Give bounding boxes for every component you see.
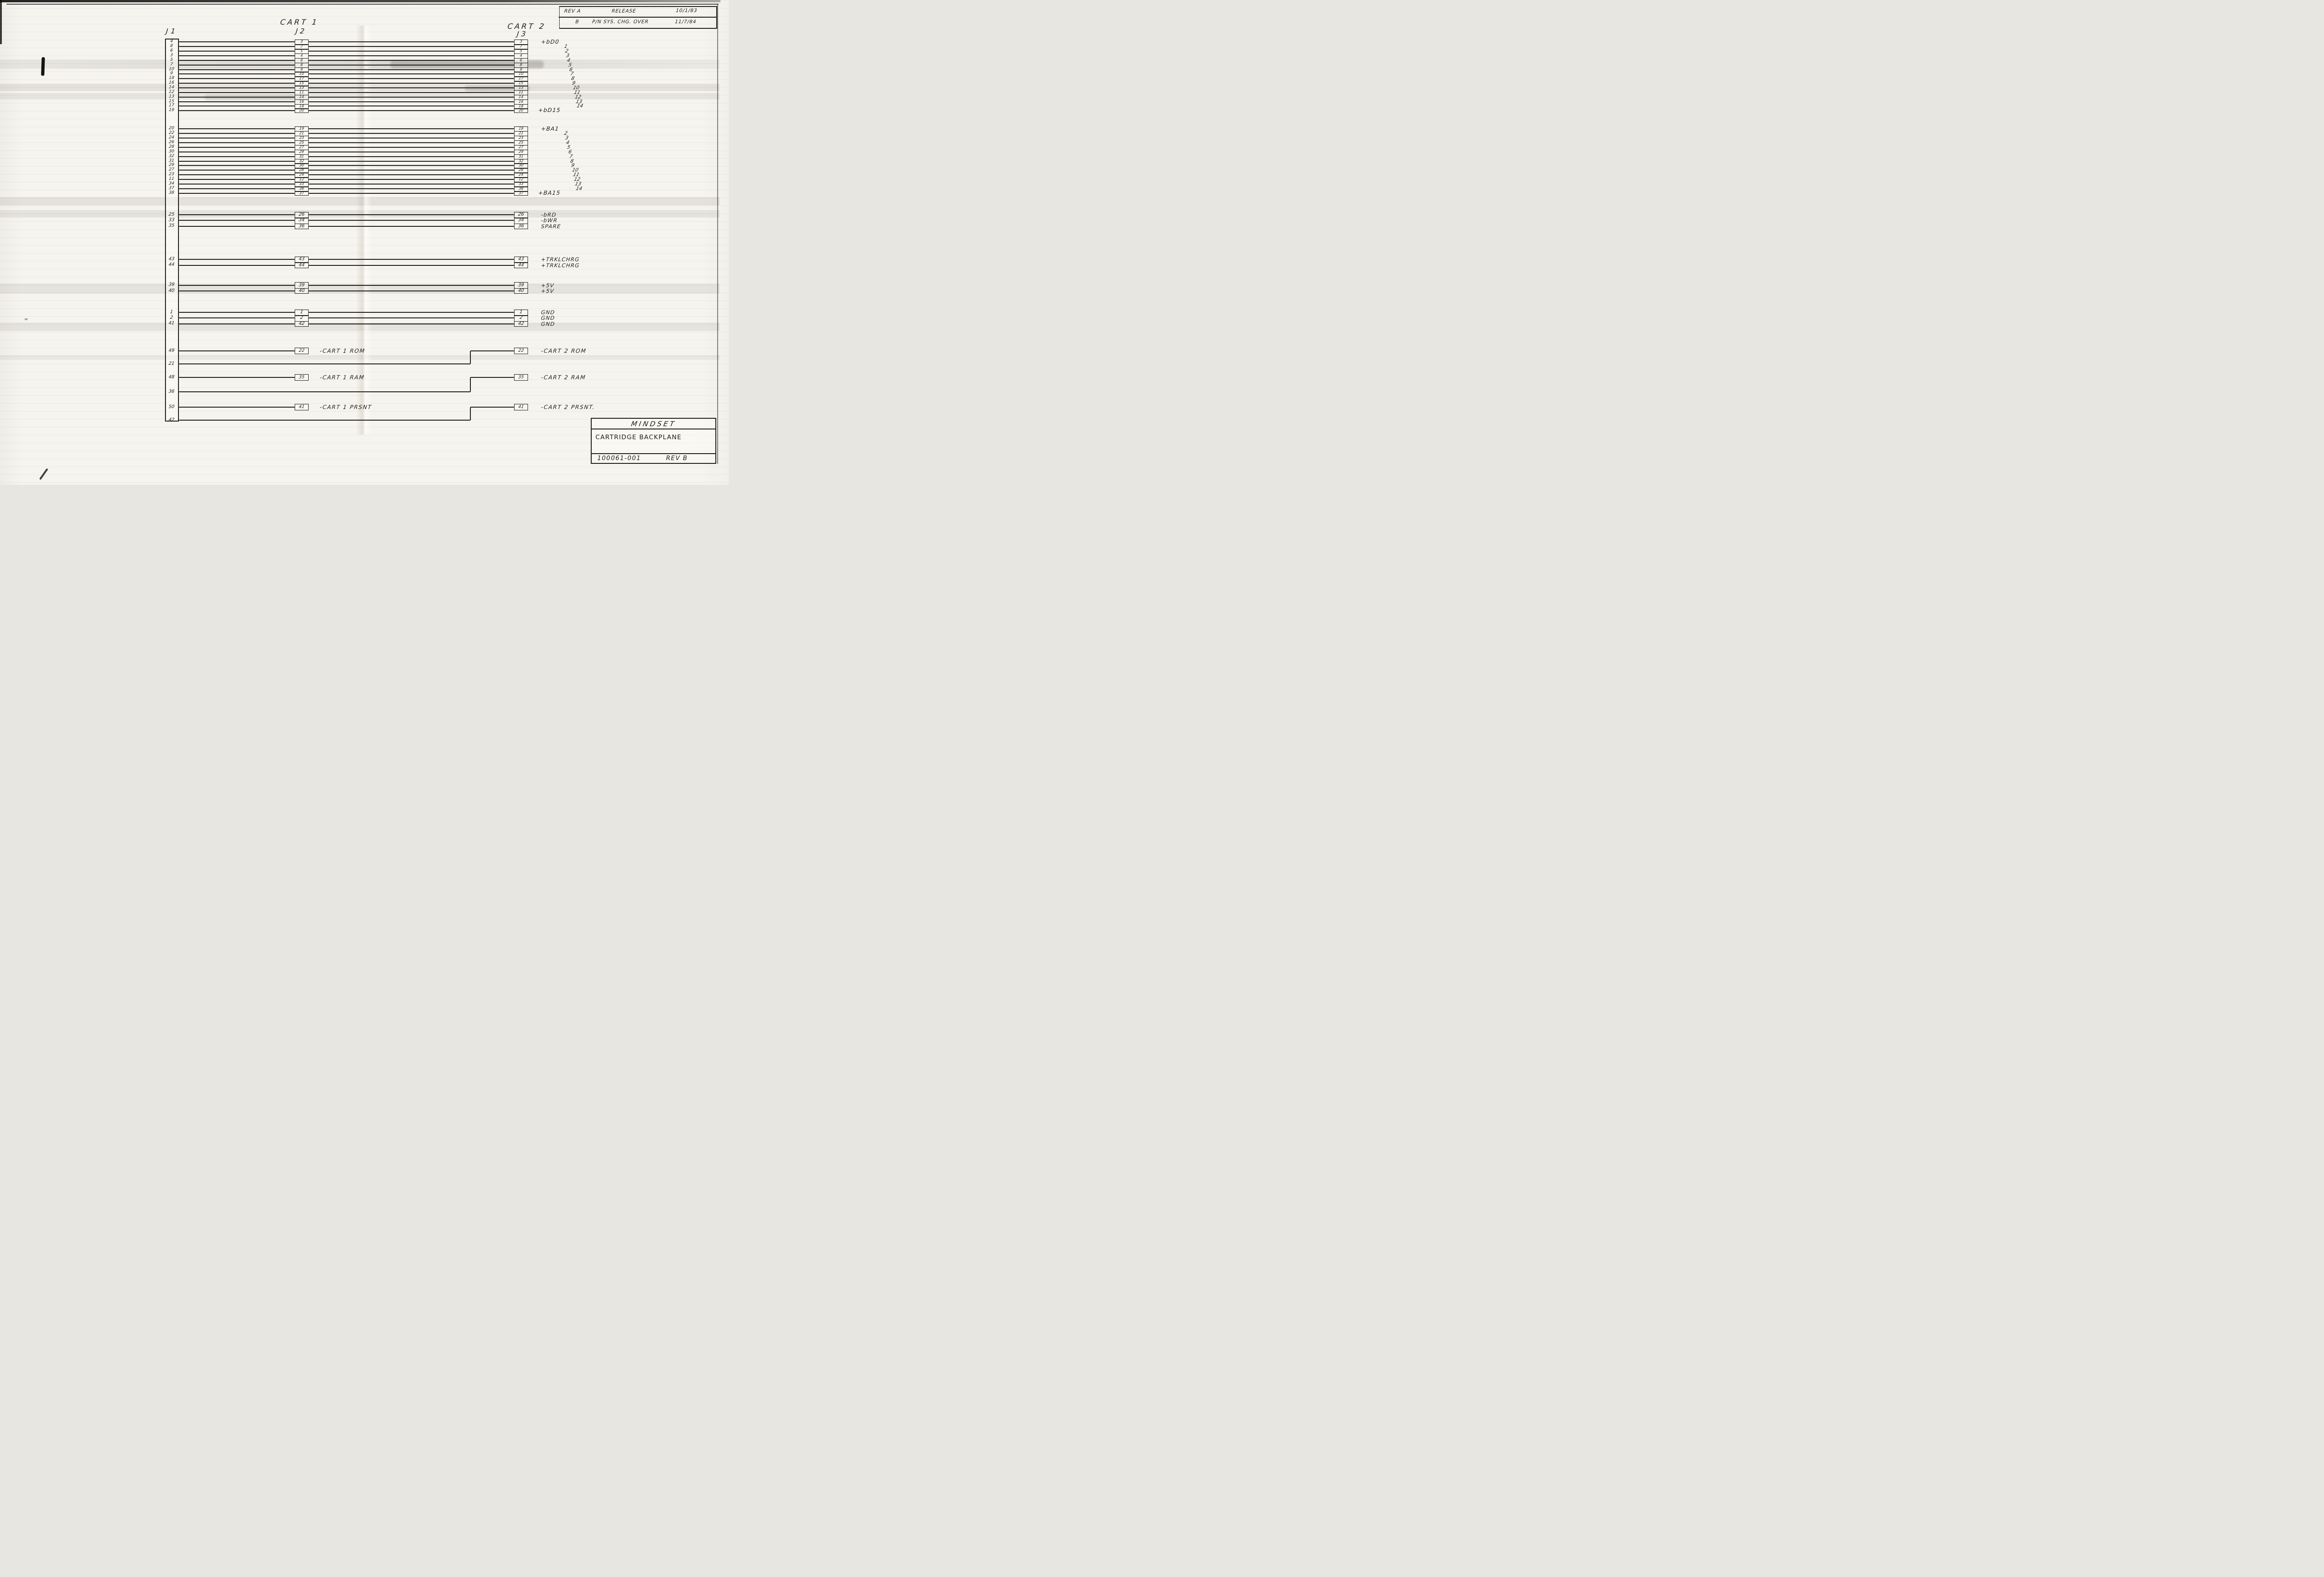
top-border-line <box>7 4 719 5</box>
j2-connector-control-pin: 34 <box>294 218 309 223</box>
wire-trickle-charge <box>179 259 295 260</box>
wire-data-bus <box>309 55 514 56</box>
wire-ground <box>179 323 295 324</box>
j1-pin-number: 23 <box>165 172 178 177</box>
j1-pin-number: 35 <box>165 223 178 228</box>
wire-data-bus <box>309 51 514 52</box>
connector-label-j1: J1 <box>165 27 178 35</box>
signal-label: +TRKLCHRG <box>541 256 580 263</box>
j3-connector-data-bus-pin: 9 <box>514 67 528 72</box>
wire-data-bus <box>309 60 514 61</box>
j2-connector-ground-pin: 42 <box>294 321 309 326</box>
wire-power <box>179 290 295 291</box>
j3-connector-data-bus-pin: 4 <box>514 53 528 58</box>
j1-pin-number: 12 <box>165 90 178 94</box>
j3-connector-address-bus-pin: 33 <box>514 182 528 186</box>
wire-data-bus <box>179 92 295 93</box>
signal-label: +5V <box>541 288 555 294</box>
j3-connector-address-bus-pin: 32 <box>514 159 528 163</box>
j3-connector-data-bus-pin: 8 <box>514 63 528 67</box>
title-block-line <box>591 429 716 429</box>
j3-connector-address-bus-pin: 38 <box>514 186 528 191</box>
j3-connector-data-bus-pin: 16 <box>514 99 528 104</box>
signal-label: +bD15 <box>538 107 561 113</box>
j1-pin-number: 21 <box>165 361 178 366</box>
revision-label: REV B <box>666 455 688 462</box>
j3-connector-power-pin: 40 <box>514 288 528 293</box>
wire-data-bus <box>179 46 295 47</box>
j2-connector-ground-pin: 2 <box>294 315 309 320</box>
j2-connector-data-bus-pin: 15 <box>294 81 309 85</box>
j3-connector-trickle-charge-pin: 44 <box>514 263 528 268</box>
j1-pin-number: 39 <box>165 282 178 287</box>
j2-connector-address-bus-pin: 31 <box>294 154 309 158</box>
j3-connector-data-bus-pin: 6 <box>514 58 528 62</box>
stray-scribble: ≈ <box>24 317 28 322</box>
cart2-signal-label: -CART 2 ROM <box>541 348 587 354</box>
j1-pin-number: 28 <box>165 145 178 149</box>
j3-connector-address-bus-pin: 25 <box>514 140 528 145</box>
wire-power <box>309 285 514 286</box>
wire-address-bus <box>179 165 295 166</box>
cart1-signal-label: -CART 1 PRSNT <box>319 404 372 410</box>
j2-connector-data-bus-pin: 4 <box>294 53 309 58</box>
j1-pin-number: 3 <box>165 53 178 58</box>
j2-connector-trickle-charge-pin: 44 <box>294 263 309 268</box>
rev-b-date: 11/7/84 <box>674 19 696 25</box>
j2-connector-data-bus-pin: 14 <box>294 95 309 99</box>
j1-pin-number: 16 <box>165 80 178 85</box>
title-block: MINDSET CARTRIDGE BACKPLANE 100061-001 R… <box>591 418 716 464</box>
j1-pin-number: 37 <box>165 186 178 191</box>
photocopy-streak <box>0 210 720 218</box>
j1-pin-number: 32 <box>165 154 178 158</box>
signal-label: +bD0 <box>541 39 560 45</box>
j3-connector-address-bus-pin: 28 <box>514 168 528 172</box>
part-number: 100061-001 <box>597 455 641 462</box>
wire-control <box>309 214 514 215</box>
j2-connector-data-bus-pin: 16 <box>294 99 309 104</box>
j1-pin-number: 27 <box>165 167 178 172</box>
j2-connector-address-bus-pin: 37 <box>294 191 309 195</box>
wire-ground <box>309 312 514 313</box>
wire-address-bus <box>309 188 514 189</box>
j1-pin-number: 41 <box>165 321 178 326</box>
j1-pin-number: 49 <box>165 348 178 353</box>
connector-label-j2: J2 <box>295 27 307 35</box>
j2-connector-data-bus-pin: 20 <box>294 108 309 112</box>
j3-connector-address-bus-pin: 24 <box>514 172 528 177</box>
j2-connector-data-bus-pin: 6 <box>294 58 309 62</box>
wire-data-bus <box>179 73 295 74</box>
wire-address-bus <box>309 161 514 162</box>
wire-data-bus <box>179 101 295 102</box>
j2-connector-data-bus-pin: 13 <box>294 86 309 90</box>
j3-cart-pin: 41 <box>514 404 528 409</box>
j1-pin-number: 43 <box>165 257 178 262</box>
j1-pin-number: 18 <box>165 76 178 80</box>
right-border-line <box>717 4 718 464</box>
wire-cart2 <box>470 350 514 351</box>
j3-connector-address-bus-pin: 19 <box>514 126 528 131</box>
j3-connector-address-bus-pin: 23 <box>514 136 528 140</box>
wire-address-bus <box>179 142 295 143</box>
j1-pin-number: 11 <box>165 177 178 181</box>
j1-pin-number: 2 <box>165 315 178 320</box>
wire-address-bus <box>179 133 295 134</box>
wire-data-bus <box>309 101 514 102</box>
wire-control <box>309 220 514 221</box>
wire-cart2 <box>179 420 470 421</box>
j2-connector-control-pin: 26 <box>294 212 309 217</box>
j3-connector-data-bus-pin: 14 <box>514 95 528 99</box>
j2-connector-address-bus-pin: 12 <box>294 177 309 181</box>
wire-data-bus <box>179 87 295 88</box>
wire-data-bus <box>179 55 295 56</box>
wire-address-bus <box>309 184 514 185</box>
j2-connector-power-pin: 39 <box>294 283 309 288</box>
wire-cart1 <box>179 350 295 351</box>
wire-address-bus <box>179 184 295 185</box>
j3-connector-data-bus-pin: 10 <box>514 72 528 76</box>
j2-connector-data-bus-pin: 7 <box>294 44 309 48</box>
cart2-step-wire <box>470 407 471 420</box>
j3-connector-data-bus-pin: 13 <box>514 86 528 90</box>
j3-connector-address-bus-pin: 30 <box>514 163 528 167</box>
j1-pin-number: 9 <box>165 71 178 76</box>
j1-pin-number: 42 <box>165 417 178 422</box>
j2-connector-address-bus-pin: 23 <box>294 136 309 140</box>
wire-data-bus <box>309 97 514 98</box>
j3-connector-ground-pin: 42 <box>514 321 528 326</box>
j3-connector-ground-pin: 2 <box>514 315 528 320</box>
wire-cart1 <box>179 407 295 408</box>
wire-address-bus <box>309 138 514 139</box>
wire-address-bus <box>309 128 514 129</box>
wire-data-bus <box>179 41 295 42</box>
j3-connector-address-bus-pin: 21 <box>514 131 528 135</box>
photocopy-blotch <box>205 95 307 100</box>
wire-control <box>179 226 295 227</box>
wire-address-bus <box>309 174 514 175</box>
rev-a-date: 10/1/83 <box>675 8 697 13</box>
wire-data-bus <box>309 87 514 88</box>
j3-connector-address-bus-pin: 12 <box>514 177 528 181</box>
j1-pin-number: 29 <box>165 163 178 167</box>
cart1-title: CART 1 <box>280 18 319 26</box>
scan-top-edge <box>0 0 720 2</box>
signal-label: GND <box>541 321 555 327</box>
j2-connector-data-bus-pin: 3 <box>294 40 309 44</box>
wire-address-bus <box>179 156 295 157</box>
j3-connector-ground-pin: 1 <box>514 310 528 315</box>
signal-label: +BA15 <box>538 190 561 196</box>
j1-pin-number: 8 <box>165 44 178 48</box>
cart1-signal-label: -CART 1 ROM <box>319 348 365 354</box>
wire-address-bus <box>309 179 514 180</box>
j1-pin-number: 30 <box>165 149 178 154</box>
cart2-signal-label: -CART 2 PRSNT. <box>541 404 595 410</box>
wire-cart2 <box>179 391 470 392</box>
wire-control <box>309 226 514 227</box>
j2-connector-power-pin: 40 <box>294 288 309 293</box>
wire-address-bus <box>309 142 514 143</box>
j1-pin-number: 1 <box>165 310 178 315</box>
j1-pin-number: 24 <box>165 135 178 140</box>
j2-connector-address-bus-pin: 27 <box>294 145 309 149</box>
cart2-step-wire <box>470 377 471 392</box>
wire-data-bus <box>179 83 295 84</box>
drawing-title: CARTRIDGE BACKPLANE <box>595 434 682 441</box>
wire-address-bus <box>179 147 295 148</box>
j2-connector-data-bus-pin: 5 <box>294 49 309 53</box>
wire-power <box>179 285 295 286</box>
wire-data-bus <box>179 78 295 79</box>
j1-pin-number: 6 <box>165 48 178 53</box>
wire-cart2 <box>470 377 514 378</box>
wire-data-bus <box>309 92 514 93</box>
j2-connector-data-bus-pin: 18 <box>294 104 309 108</box>
wire-address-bus <box>309 156 514 157</box>
signal-bit-number: 14 <box>575 186 583 191</box>
j1-pin-number: 5 <box>165 58 178 62</box>
wire-address-bus <box>179 152 295 152</box>
wire-data-bus <box>179 110 295 111</box>
wire-control <box>179 220 295 221</box>
j2-cart-pin: 22 <box>294 348 309 353</box>
j1-pin-number: 48 <box>165 375 178 380</box>
wire-cart2 <box>470 407 514 408</box>
wire-data-bus <box>309 69 514 70</box>
wire-trickle-charge <box>309 265 514 266</box>
rev-b-desc: P/N SYS. CHG. OVER <box>592 19 648 25</box>
j3-cart-pin: 22 <box>514 348 528 353</box>
wire-data-bus <box>179 65 295 66</box>
wire-trickle-charge <box>309 259 514 260</box>
signal-label: SPARE <box>541 223 561 230</box>
j1-pin-number: 19 <box>165 108 178 112</box>
wire-data-bus <box>309 78 514 79</box>
wire-address-bus <box>179 128 295 129</box>
j1-pin-number: 26 <box>165 140 178 145</box>
j2-connector-address-bus-pin: 29 <box>294 150 309 154</box>
j3-connector-data-bus-pin: 11 <box>514 90 528 94</box>
j1-pin-number: 4 <box>165 39 178 44</box>
wire-address-bus <box>179 188 295 189</box>
title-block-line <box>591 453 716 454</box>
rev-a-desc: RELEASE <box>611 8 636 14</box>
wire-power <box>309 290 514 291</box>
wire-ground <box>179 312 295 313</box>
wire-data-bus <box>179 106 295 106</box>
wire-address-bus <box>179 161 295 162</box>
rev-b-label: B <box>575 19 579 25</box>
scan-corner-mark <box>39 468 48 480</box>
wire-cart2 <box>179 363 470 364</box>
j2-connector-control-pin: 36 <box>294 224 309 229</box>
j2-connector-address-bus-pin: 25 <box>294 140 309 145</box>
j2-connector-address-bus-pin: 38 <box>294 186 309 191</box>
wire-address-bus <box>179 193 295 194</box>
j3-cart-pin: 35 <box>514 375 528 380</box>
wire-address-bus <box>309 133 514 134</box>
wire-data-bus <box>309 46 514 47</box>
j2-connector-address-bus-pin: 30 <box>294 163 309 167</box>
j1-pin-number: 36 <box>165 389 178 394</box>
wire-trickle-charge <box>179 265 295 266</box>
j1-pin-number: 50 <box>165 404 178 409</box>
photocopy-streak <box>0 197 720 205</box>
wire-data-bus <box>309 106 514 106</box>
company-name: MINDSET <box>591 420 716 428</box>
wire-address-bus <box>309 170 514 171</box>
j1-pin-number: 20 <box>165 126 178 131</box>
cart2-signal-label: -CART 2 RAM <box>541 374 586 381</box>
j3-connector-data-bus-pin: 3 <box>514 40 528 44</box>
wire-ground <box>309 323 514 324</box>
wire-address-bus <box>309 152 514 152</box>
wire-ground <box>309 317 514 318</box>
revision-table-divider <box>559 17 717 18</box>
j1-pin-number: 34 <box>165 181 178 186</box>
signal-label: +TRKLCHRG <box>541 262 580 269</box>
wire-address-bus <box>179 174 295 175</box>
j3-connector-data-bus-pin: 15 <box>514 81 528 85</box>
ink-mark <box>41 57 45 76</box>
signal-bit-number: 14 <box>576 103 584 109</box>
j1-pin-number: 25 <box>165 212 178 217</box>
j2-connector-data-bus-pin: 11 <box>294 90 309 94</box>
wire-data-bus <box>309 110 514 111</box>
j1-pin-number: 13 <box>165 94 178 99</box>
j3-connector-address-bus-pin: 37 <box>514 191 528 195</box>
j2-connector-trickle-charge-pin: 43 <box>294 257 309 262</box>
j2-connector-data-bus-pin: 8 <box>294 63 309 67</box>
j3-connector-data-bus-pin: 5 <box>514 49 528 53</box>
wire-data-bus <box>179 51 295 52</box>
j1-pin-number: 40 <box>165 288 178 293</box>
signal-label: +BA1 <box>541 125 559 132</box>
j1-pin-number: 44 <box>165 262 178 267</box>
j3-connector-data-bus-pin: 7 <box>514 44 528 48</box>
j2-connector-data-bus-pin: 17 <box>294 76 309 80</box>
wire-address-bus <box>179 179 295 180</box>
j3-connector-address-bus-pin: 27 <box>514 145 528 149</box>
j2-connector-address-bus-pin: 19 <box>294 126 309 131</box>
j3-connector-control-pin: 36 <box>514 224 528 229</box>
paper-crease <box>356 26 372 435</box>
connector-label-j3: J3 <box>516 30 528 38</box>
j1-pin-number: 17 <box>165 103 178 108</box>
rev-a-label: REV A <box>564 8 581 14</box>
wire-data-bus <box>179 69 295 70</box>
j2-connector-address-bus-pin: 24 <box>294 172 309 177</box>
cart2-step-wire <box>470 351 471 364</box>
j3-connector-control-pin: 34 <box>514 218 528 223</box>
j2-connector-data-bus-pin: 10 <box>294 72 309 76</box>
j3-connector-address-bus-pin: 31 <box>514 154 528 158</box>
j1-pin-number: 31 <box>165 158 178 163</box>
wire-cart1 <box>179 377 295 378</box>
wire-ground <box>179 317 295 318</box>
j3-connector-trickle-charge-pin: 43 <box>514 257 528 262</box>
wire-control <box>179 214 295 215</box>
j3-connector-data-bus-pin: 17 <box>514 76 528 80</box>
j3-connector-data-bus-pin: 20 <box>514 108 528 112</box>
j2-connector-data-bus-pin: 9 <box>294 67 309 72</box>
wire-data-bus <box>309 73 514 74</box>
j1-pin-number: 14 <box>165 85 178 90</box>
revision-table: REV A RELEASE 10/1/83 B P/N SYS. CHG. OV… <box>559 6 717 29</box>
j2-cart-pin: 41 <box>294 404 309 409</box>
wire-data-bus <box>179 97 295 98</box>
j2-cart-pin: 35 <box>294 375 309 380</box>
schematic-page: ≈ J1 CART 1 J2 CART 2 J3 REV A RELEASE 1… <box>0 0 729 485</box>
j1-pin-number: 7 <box>165 62 178 67</box>
wire-address-bus <box>309 193 514 194</box>
photocopy-streak <box>0 355 720 360</box>
wire-data-bus <box>309 65 514 66</box>
wire-address-bus <box>309 147 514 148</box>
j1-pin-number: 33 <box>165 218 178 223</box>
j2-connector-address-bus-pin: 33 <box>294 182 309 186</box>
wire-data-bus <box>309 41 514 42</box>
j2-connector-ground-pin: 1 <box>294 310 309 315</box>
j2-connector-address-bus-pin: 32 <box>294 159 309 163</box>
j3-connector-control-pin: 26 <box>514 212 528 217</box>
j2-connector-address-bus-pin: 28 <box>294 168 309 172</box>
j3-connector-power-pin: 39 <box>514 283 528 288</box>
j3-connector-data-bus-pin: 18 <box>514 104 528 108</box>
j1-pin-number: 22 <box>165 131 178 135</box>
wire-data-bus <box>179 60 295 61</box>
wire-address-bus <box>179 138 295 139</box>
cart1-signal-label: -CART 1 RAM <box>319 374 365 381</box>
j2-connector-address-bus-pin: 21 <box>294 131 309 135</box>
j1-pin-number: 38 <box>165 191 178 195</box>
j3-connector-address-bus-pin: 29 <box>514 150 528 154</box>
scan-left-edge <box>0 0 2 44</box>
wire-address-bus <box>309 165 514 166</box>
wire-data-bus <box>309 83 514 84</box>
wire-address-bus <box>179 170 295 171</box>
